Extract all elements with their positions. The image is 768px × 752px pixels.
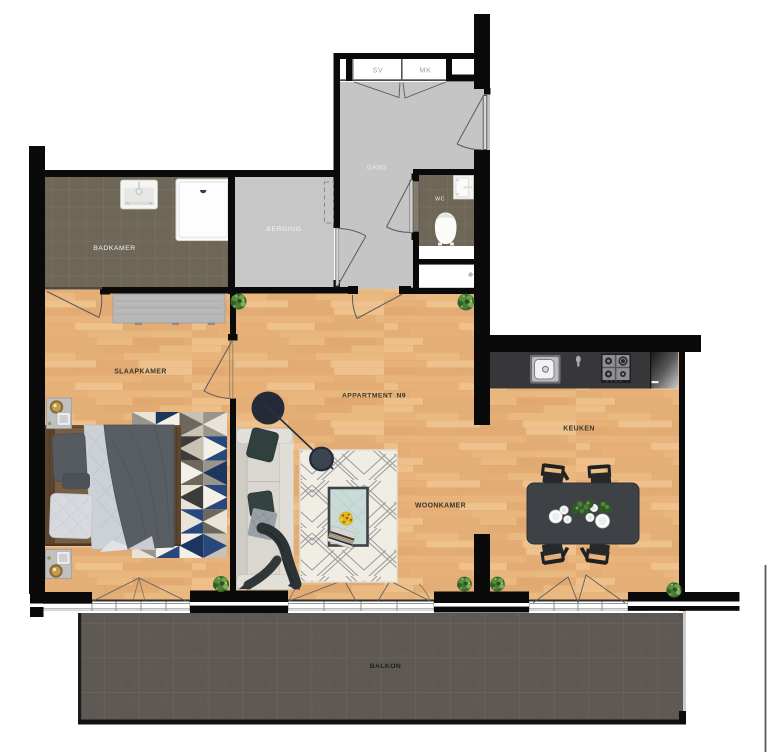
svg-text:SLAAPKAMER: SLAAPKAMER xyxy=(114,369,167,376)
svg-text:GANG: GANG xyxy=(367,165,387,172)
svg-text:SV: SV xyxy=(373,66,384,75)
svg-text:KEUKEN: KEUKEN xyxy=(563,426,595,433)
svg-text:BERGING: BERGING xyxy=(266,226,301,233)
svg-text:APPARTMENT N9: APPARTMENT N9 xyxy=(342,393,406,400)
svg-text:MK: MK xyxy=(419,66,431,75)
svg-text:WOONKAMER: WOONKAMER xyxy=(415,503,466,510)
svg-text:BADKAMER: BADKAMER xyxy=(93,245,136,252)
svg-text:WC: WC xyxy=(435,197,445,203)
svg-text:BALKON: BALKON xyxy=(370,663,401,670)
